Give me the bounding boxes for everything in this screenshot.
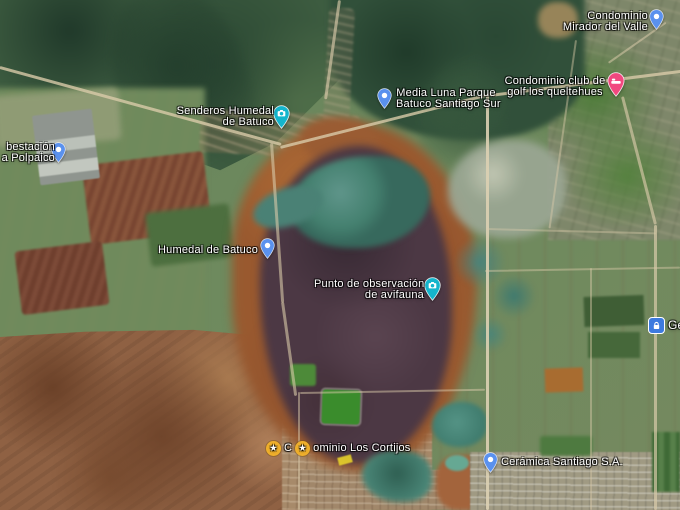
poi-label-ceramica-santiago[interactable]: Cerámica Santiago S.A.: [501, 457, 623, 468]
camera-pin-icon: [273, 105, 290, 129]
poi-label-condominio-los-cortijos[interactable]: ★ C ★ ominio Los Cortijos: [266, 441, 411, 456]
label-line: a Polpaico: [0, 153, 55, 164]
label-line: de Batuco: [172, 117, 274, 128]
label-fragment: ominio Los Cortijos: [313, 443, 410, 454]
road-east-vertical-faint: [590, 268, 592, 510]
terrain-green-field-east-2: [588, 332, 640, 358]
terrain-field-green-dark: [145, 203, 235, 267]
wetland-pond-southeast: [432, 402, 487, 447]
poi-label-ge[interactable]: Ge: [648, 317, 680, 334]
map-pin-icon: [483, 452, 498, 473]
camera-pin-icon: [424, 277, 441, 301]
wetland-teal-pools-east: [452, 236, 552, 356]
label-line: Mirador del Valle: [520, 22, 648, 33]
poi-label-condominio-mirador-del-valle[interactable]: Condominio Mirador del Valle: [520, 11, 648, 33]
label-line: Humedal de Batuco: [158, 245, 258, 256]
poi-label-punto-observacion-avifauna[interactable]: Punto de observación de avifauna: [314, 279, 424, 301]
poi-pin-condominio-club-de-golf[interactable]: [607, 72, 625, 102]
map-pin-icon: [649, 9, 664, 30]
poi-label-humedal-de-batuco[interactable]: Humedal de Batuco: [158, 245, 258, 256]
poi-label-senderos-humedal[interactable]: Senderos Humedal de Batuco: [172, 106, 274, 128]
label-line: Cerámica Santiago S.A.: [501, 457, 623, 468]
blue-square-poi-icon[interactable]: [648, 317, 665, 334]
label-line: golf los queltehues: [504, 87, 606, 98]
label-line: de avifauna: [314, 290, 424, 301]
poi-pin-senderos-humedal[interactable]: [273, 105, 290, 134]
terrain-sports-field: [321, 389, 360, 424]
poi-label-condominio-club-de-golf[interactable]: Condominio club de golf los queltehues: [504, 76, 606, 98]
lodging-pin-icon: [607, 72, 625, 97]
map-pin-icon: [377, 88, 392, 109]
terrain-orange-field-east: [545, 367, 584, 392]
terrain-green-patch-above-urban: [540, 436, 592, 456]
terrain-green-field-east-1: [583, 295, 644, 327]
road-main-north-south: [486, 94, 489, 510]
satellite-map-canvas[interactable]: Condominio Mirador del Valle Condominio …: [0, 0, 680, 510]
poi-label-subestacion-polpaico[interactable]: bestación a Polpaico: [0, 142, 55, 164]
poi-pin-humedal-de-batuco[interactable]: [260, 238, 275, 264]
poi-label-media-luna-parque[interactable]: Media Luna Parque Batuco Santiago Sur: [396, 88, 496, 110]
poi-pin-media-luna-parque[interactable]: [377, 88, 392, 114]
map-pin-icon: [260, 238, 275, 259]
label-line: Batuco Santiago Sur: [396, 99, 496, 110]
poi-pin-ceramica-santiago[interactable]: [483, 452, 498, 478]
terrain-field-red-b: [14, 241, 109, 315]
saved-star-icon[interactable]: ★: [295, 441, 310, 456]
padlock-icon: [651, 320, 662, 331]
label-fragment: C: [284, 443, 292, 454]
wetland-pond-bright: [445, 455, 469, 471]
poi-pin-punto-observacion-avifauna[interactable]: [424, 277, 441, 306]
saved-star-icon[interactable]: ★: [266, 441, 281, 456]
poi-pin-condominio-mirador-del-valle[interactable]: [649, 9, 664, 35]
label-fragment: Ge: [668, 320, 680, 331]
